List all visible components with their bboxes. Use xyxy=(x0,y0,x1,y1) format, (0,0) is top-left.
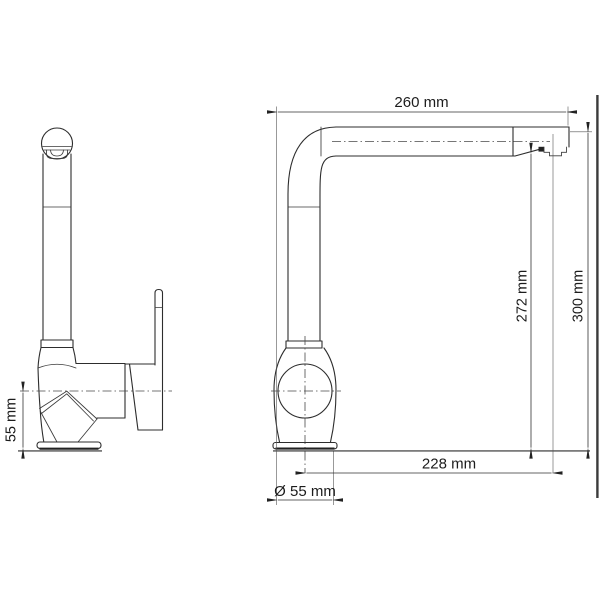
dimension-base-diameter: Ø 55 mm xyxy=(274,483,336,500)
dim-label-228mm: 228 mm xyxy=(422,456,476,473)
dimension-300mm: 300 mm xyxy=(570,133,588,448)
aerator-seal xyxy=(539,147,545,152)
dim-label-55mm: 55 mm xyxy=(3,398,19,442)
dim-label-260mm: 260 mm xyxy=(394,94,448,111)
drawing-canvas: 55 mm xyxy=(0,0,600,600)
aerator-outlet xyxy=(544,147,567,156)
side-body xyxy=(271,336,341,473)
dimension-272mm: 272 mm xyxy=(514,154,531,448)
side-view xyxy=(271,127,590,473)
front-view: 55 mm xyxy=(3,128,172,451)
faucet-dimension-drawing: 55 mm xyxy=(0,0,600,600)
front-base-flange xyxy=(18,442,102,451)
dimension-228mm: 228 mm xyxy=(307,456,552,474)
dim-label-base-diameter: Ø 55 mm xyxy=(274,483,336,500)
side-base-flange xyxy=(273,443,590,451)
front-riser-tube xyxy=(41,154,73,348)
front-handle xyxy=(125,290,163,431)
dim-label-272mm: 272 mm xyxy=(514,270,530,322)
dimension-260mm: 260 mm xyxy=(278,94,566,112)
dimension-55mm: 55 mm xyxy=(3,393,23,448)
front-body xyxy=(38,348,125,443)
front-spout-head xyxy=(42,128,73,159)
dim-label-300mm: 300 mm xyxy=(570,270,586,322)
drawing-border-edge xyxy=(596,95,598,498)
